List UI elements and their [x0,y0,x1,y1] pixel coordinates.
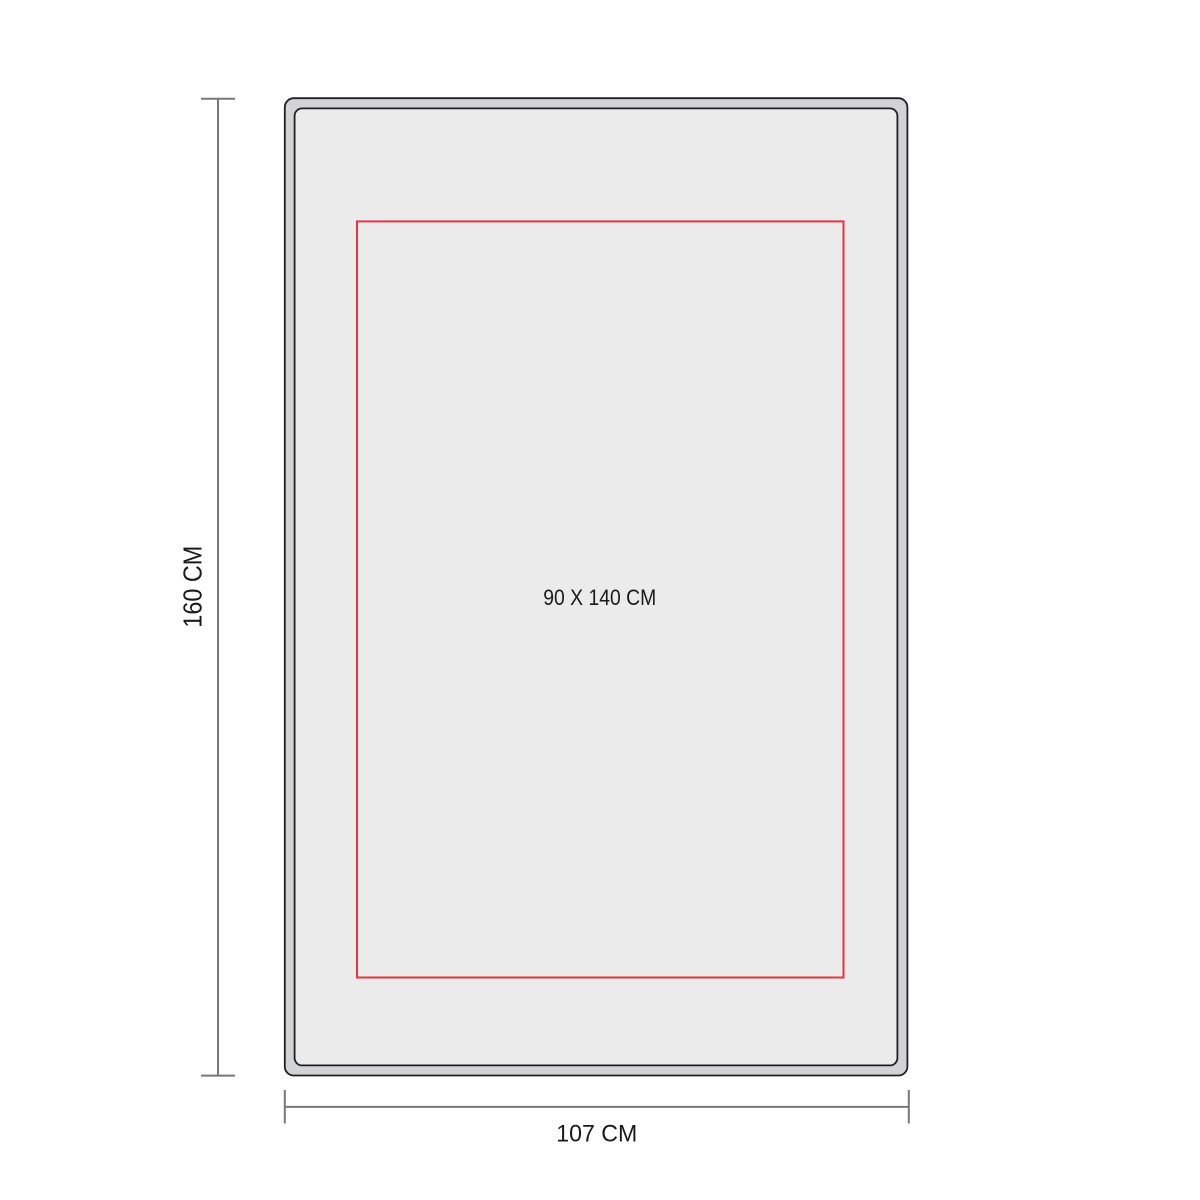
svg-text:160 CM: 160 CM [180,546,208,628]
svg-text:90 X 140 CM: 90 X 140 CM [543,585,656,610]
svg-text:107 CM: 107 CM [556,1121,637,1148]
